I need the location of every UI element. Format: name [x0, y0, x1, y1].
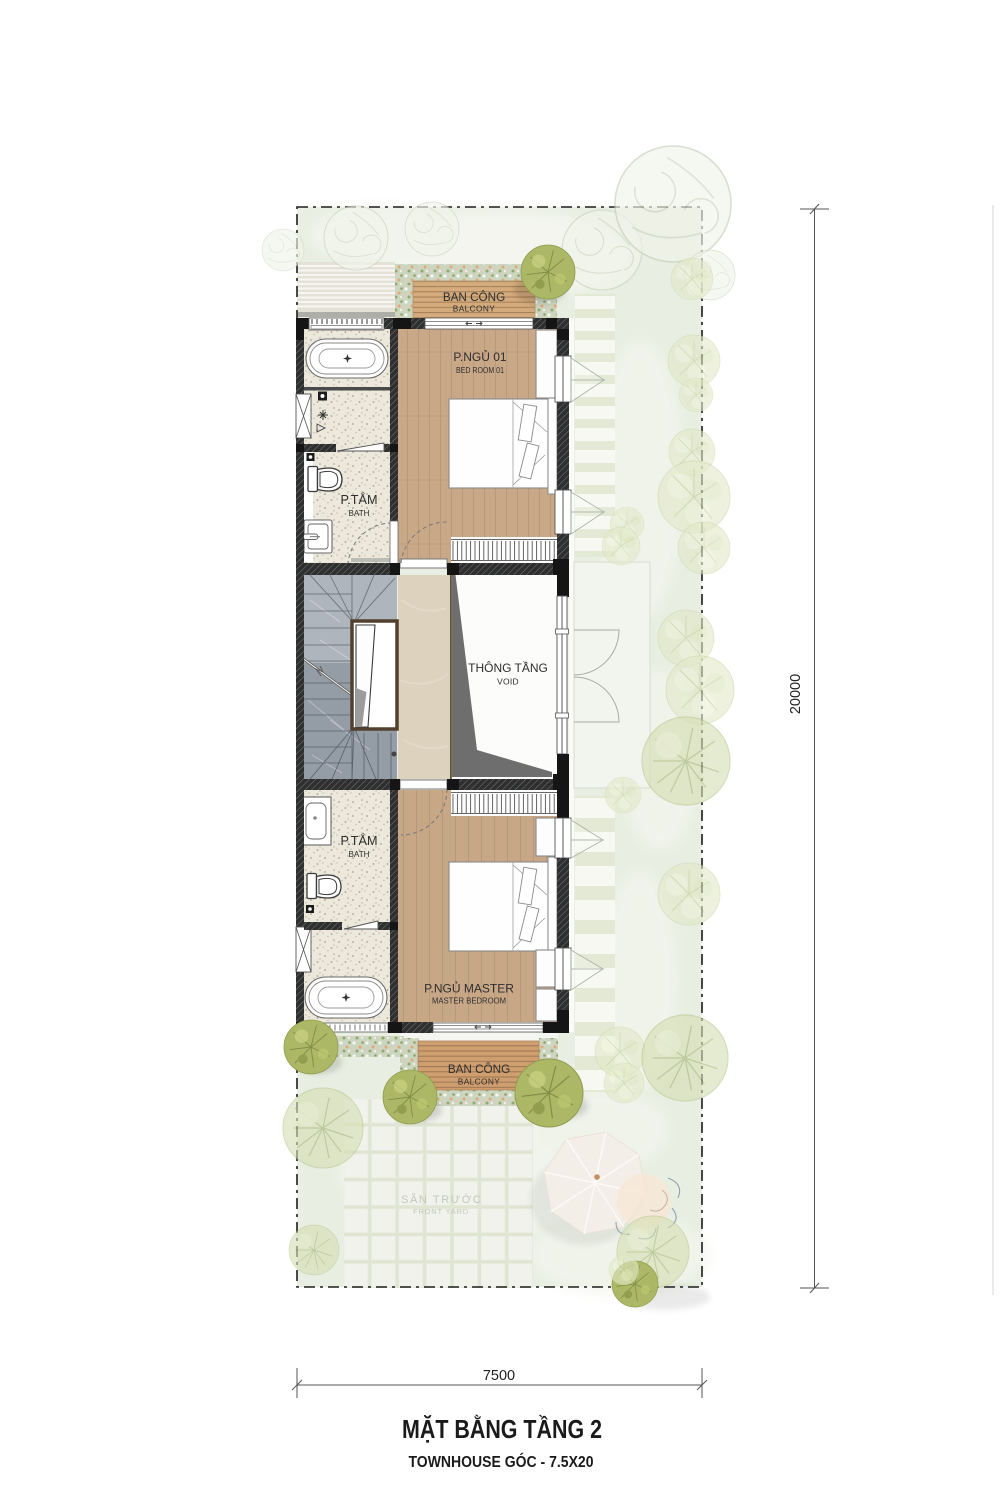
svg-text:20000: 20000 — [788, 674, 804, 714]
svg-text:P.TẮM: P.TẮM — [341, 492, 378, 507]
svg-text:7500: 7500 — [483, 1368, 515, 1384]
svg-text:MASTER BEDROOM: MASTER BEDROOM — [432, 996, 506, 1006]
svg-text:P.NGỦ 01: P.NGỦ 01 — [453, 349, 506, 364]
svg-text:P.NGỦ MASTER: P.NGỦ MASTER — [424, 981, 514, 996]
svg-text:SÂN TRƯỚC: SÂN TRƯỚC — [401, 1193, 482, 1206]
svg-text:BED ROOM 01: BED ROOM 01 — [456, 365, 504, 375]
svg-text:BAN CÔNG: BAN CÔNG — [443, 291, 505, 304]
svg-text:P.TẮM: P.TẮM — [341, 833, 378, 848]
svg-text:THÔNG TẦNG: THÔNG TẦNG — [468, 660, 548, 675]
svg-text:TOWNHOUSE GÓC - 7.5X20: TOWNHOUSE GÓC - 7.5X20 — [409, 1452, 594, 1471]
svg-text:FRONT YARD: FRONT YARD — [413, 1207, 469, 1216]
svg-text:MẶT BẰNG TẦNG 2: MẶT BẰNG TẦNG 2 — [402, 1414, 602, 1444]
svg-text:BATH: BATH — [349, 508, 370, 518]
svg-text:BALCONY: BALCONY — [458, 1077, 501, 1087]
svg-text:BATH: BATH — [349, 849, 370, 859]
svg-text:BALCONY: BALCONY — [453, 304, 496, 314]
svg-text:VOID: VOID — [497, 677, 519, 687]
svg-text:BAN CÔNG: BAN CÔNG — [448, 1063, 510, 1076]
